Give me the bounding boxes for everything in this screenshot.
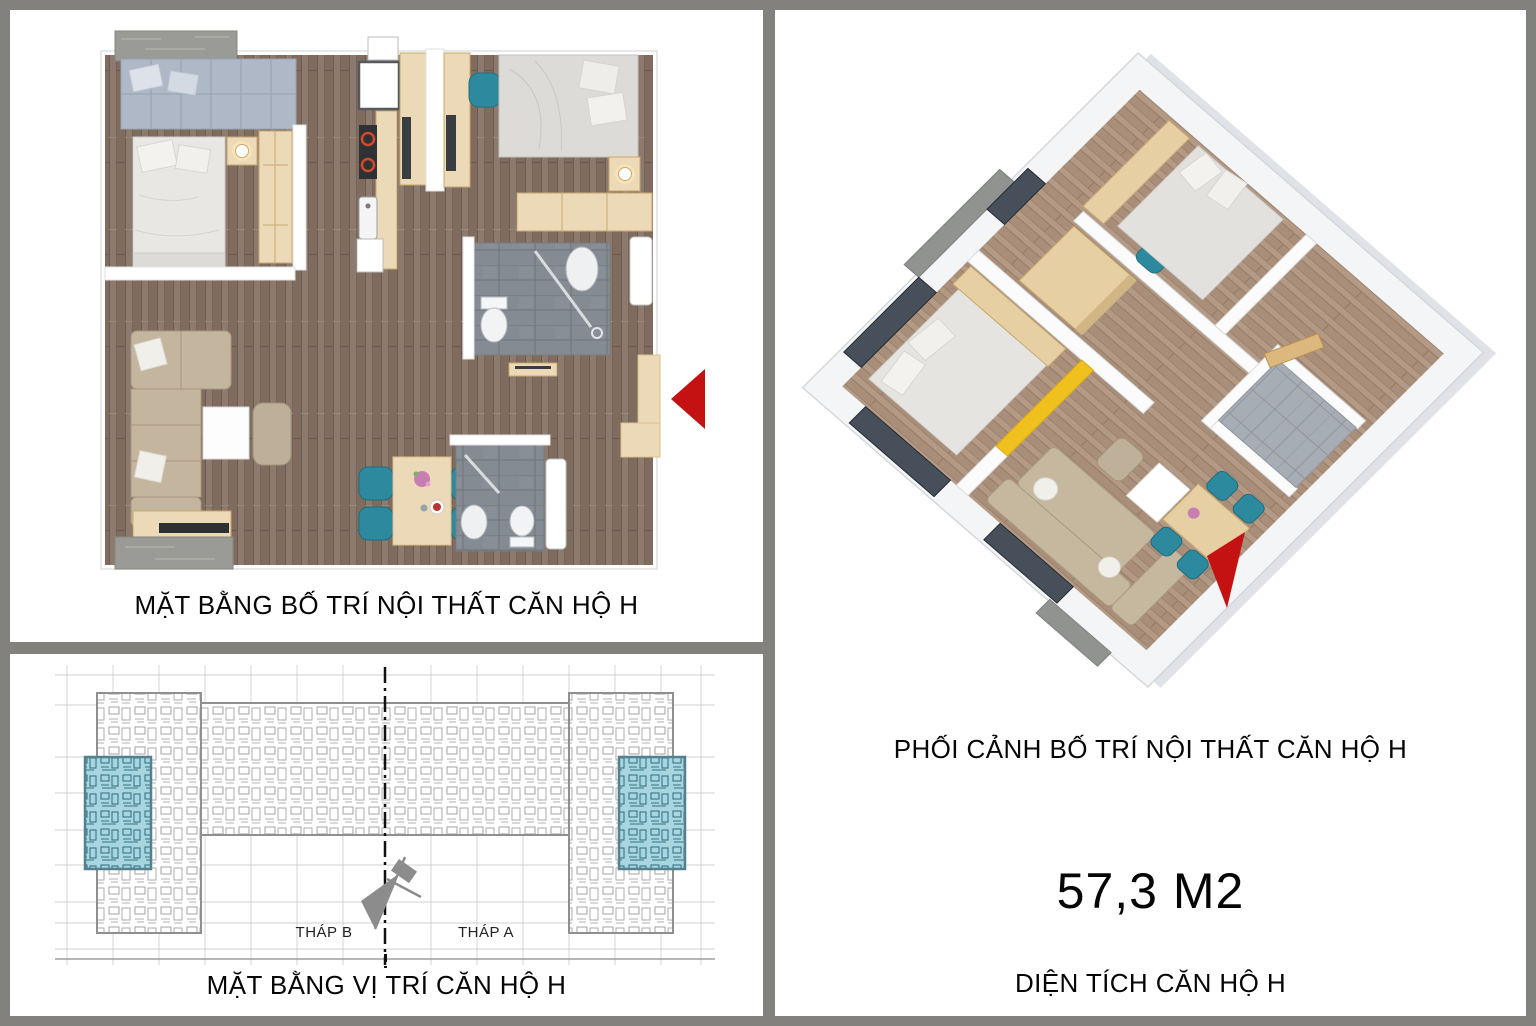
bath-1-sink xyxy=(566,247,598,291)
sofa-body xyxy=(131,389,201,497)
lamp-1 xyxy=(236,145,249,158)
perspective-title: PHỐI CẢNH BỐ TRÍ NỘI THẤT CĂN HỘ H xyxy=(775,734,1526,765)
bath-1-toilet xyxy=(481,308,507,342)
coffee-table xyxy=(203,407,249,459)
desk-chair-teal xyxy=(469,73,501,107)
dining-table xyxy=(393,457,451,545)
wardrobe-2 xyxy=(517,193,652,231)
furniture-plan-panel: MẶT BẰNG BỐ TRÍ NỘI THẤT CĂN HỘ H xyxy=(10,10,763,642)
pouf xyxy=(253,403,291,465)
bath-2-sink xyxy=(461,505,487,539)
entry-threshold xyxy=(638,355,660,433)
axis-centerline-extension xyxy=(384,954,387,968)
balcony-top xyxy=(115,31,296,129)
dining-chair xyxy=(359,467,393,500)
tower-a-label: THÁP A xyxy=(458,924,514,941)
unit-h-highlight-right xyxy=(619,757,685,869)
wall xyxy=(450,435,550,445)
kitchen-sink xyxy=(359,197,377,239)
north-arrow-icon xyxy=(361,857,421,929)
wall xyxy=(426,49,444,191)
perspective-panel: PHỐI CẢNH BỐ TRÍ NỘI THẤT CĂN HỘ H 57,3 … xyxy=(775,10,1526,1016)
site-plan: THÁP B THÁP A xyxy=(55,665,715,965)
balcony-bottom xyxy=(115,537,233,569)
tower-b-label: THÁP B xyxy=(296,924,353,941)
tv-2 xyxy=(446,115,456,171)
unit-h-highlight-left xyxy=(85,757,151,869)
hall-shelf xyxy=(509,363,557,376)
bath-1-tub xyxy=(630,237,652,305)
entrance-arrow-icon xyxy=(671,369,705,429)
cabinet xyxy=(357,239,383,272)
wall xyxy=(105,267,295,280)
bedroom-1 xyxy=(105,125,306,280)
entry-cabinet xyxy=(621,423,660,457)
lamp-2 xyxy=(619,168,632,181)
furniture-plan-title: MẶT BẰNG BỐ TRÍ NỘI THẤT CĂN HỘ H xyxy=(10,590,763,621)
bath-2-toilet xyxy=(510,506,534,536)
fridge xyxy=(359,62,399,109)
site-plan-panel: THÁP B THÁP A MẶT BẰNG VỊ TRÍ CĂN HỘ H xyxy=(10,654,763,1016)
tv xyxy=(159,523,229,533)
unit-area-caption: DIỆN TÍCH CĂN HỘ H xyxy=(775,968,1526,999)
site-plan-title: MẶT BẰNG VỊ TRÍ CĂN HỘ H xyxy=(10,970,763,1001)
dining-chair xyxy=(359,507,393,540)
wall xyxy=(293,125,306,270)
floor-plan-2d xyxy=(85,25,705,577)
unit-area-value: 57,3 M2 xyxy=(775,862,1526,920)
perspective-3d xyxy=(775,18,1525,718)
wall xyxy=(463,237,474,359)
plate xyxy=(433,503,441,511)
range-hood xyxy=(368,37,398,60)
apartment-iso xyxy=(779,37,1496,705)
brochure-sheet: { "floor_plan_panel": { "title": "MẶT BẰ… xyxy=(0,0,1536,1026)
bath-2-tub xyxy=(546,459,566,549)
